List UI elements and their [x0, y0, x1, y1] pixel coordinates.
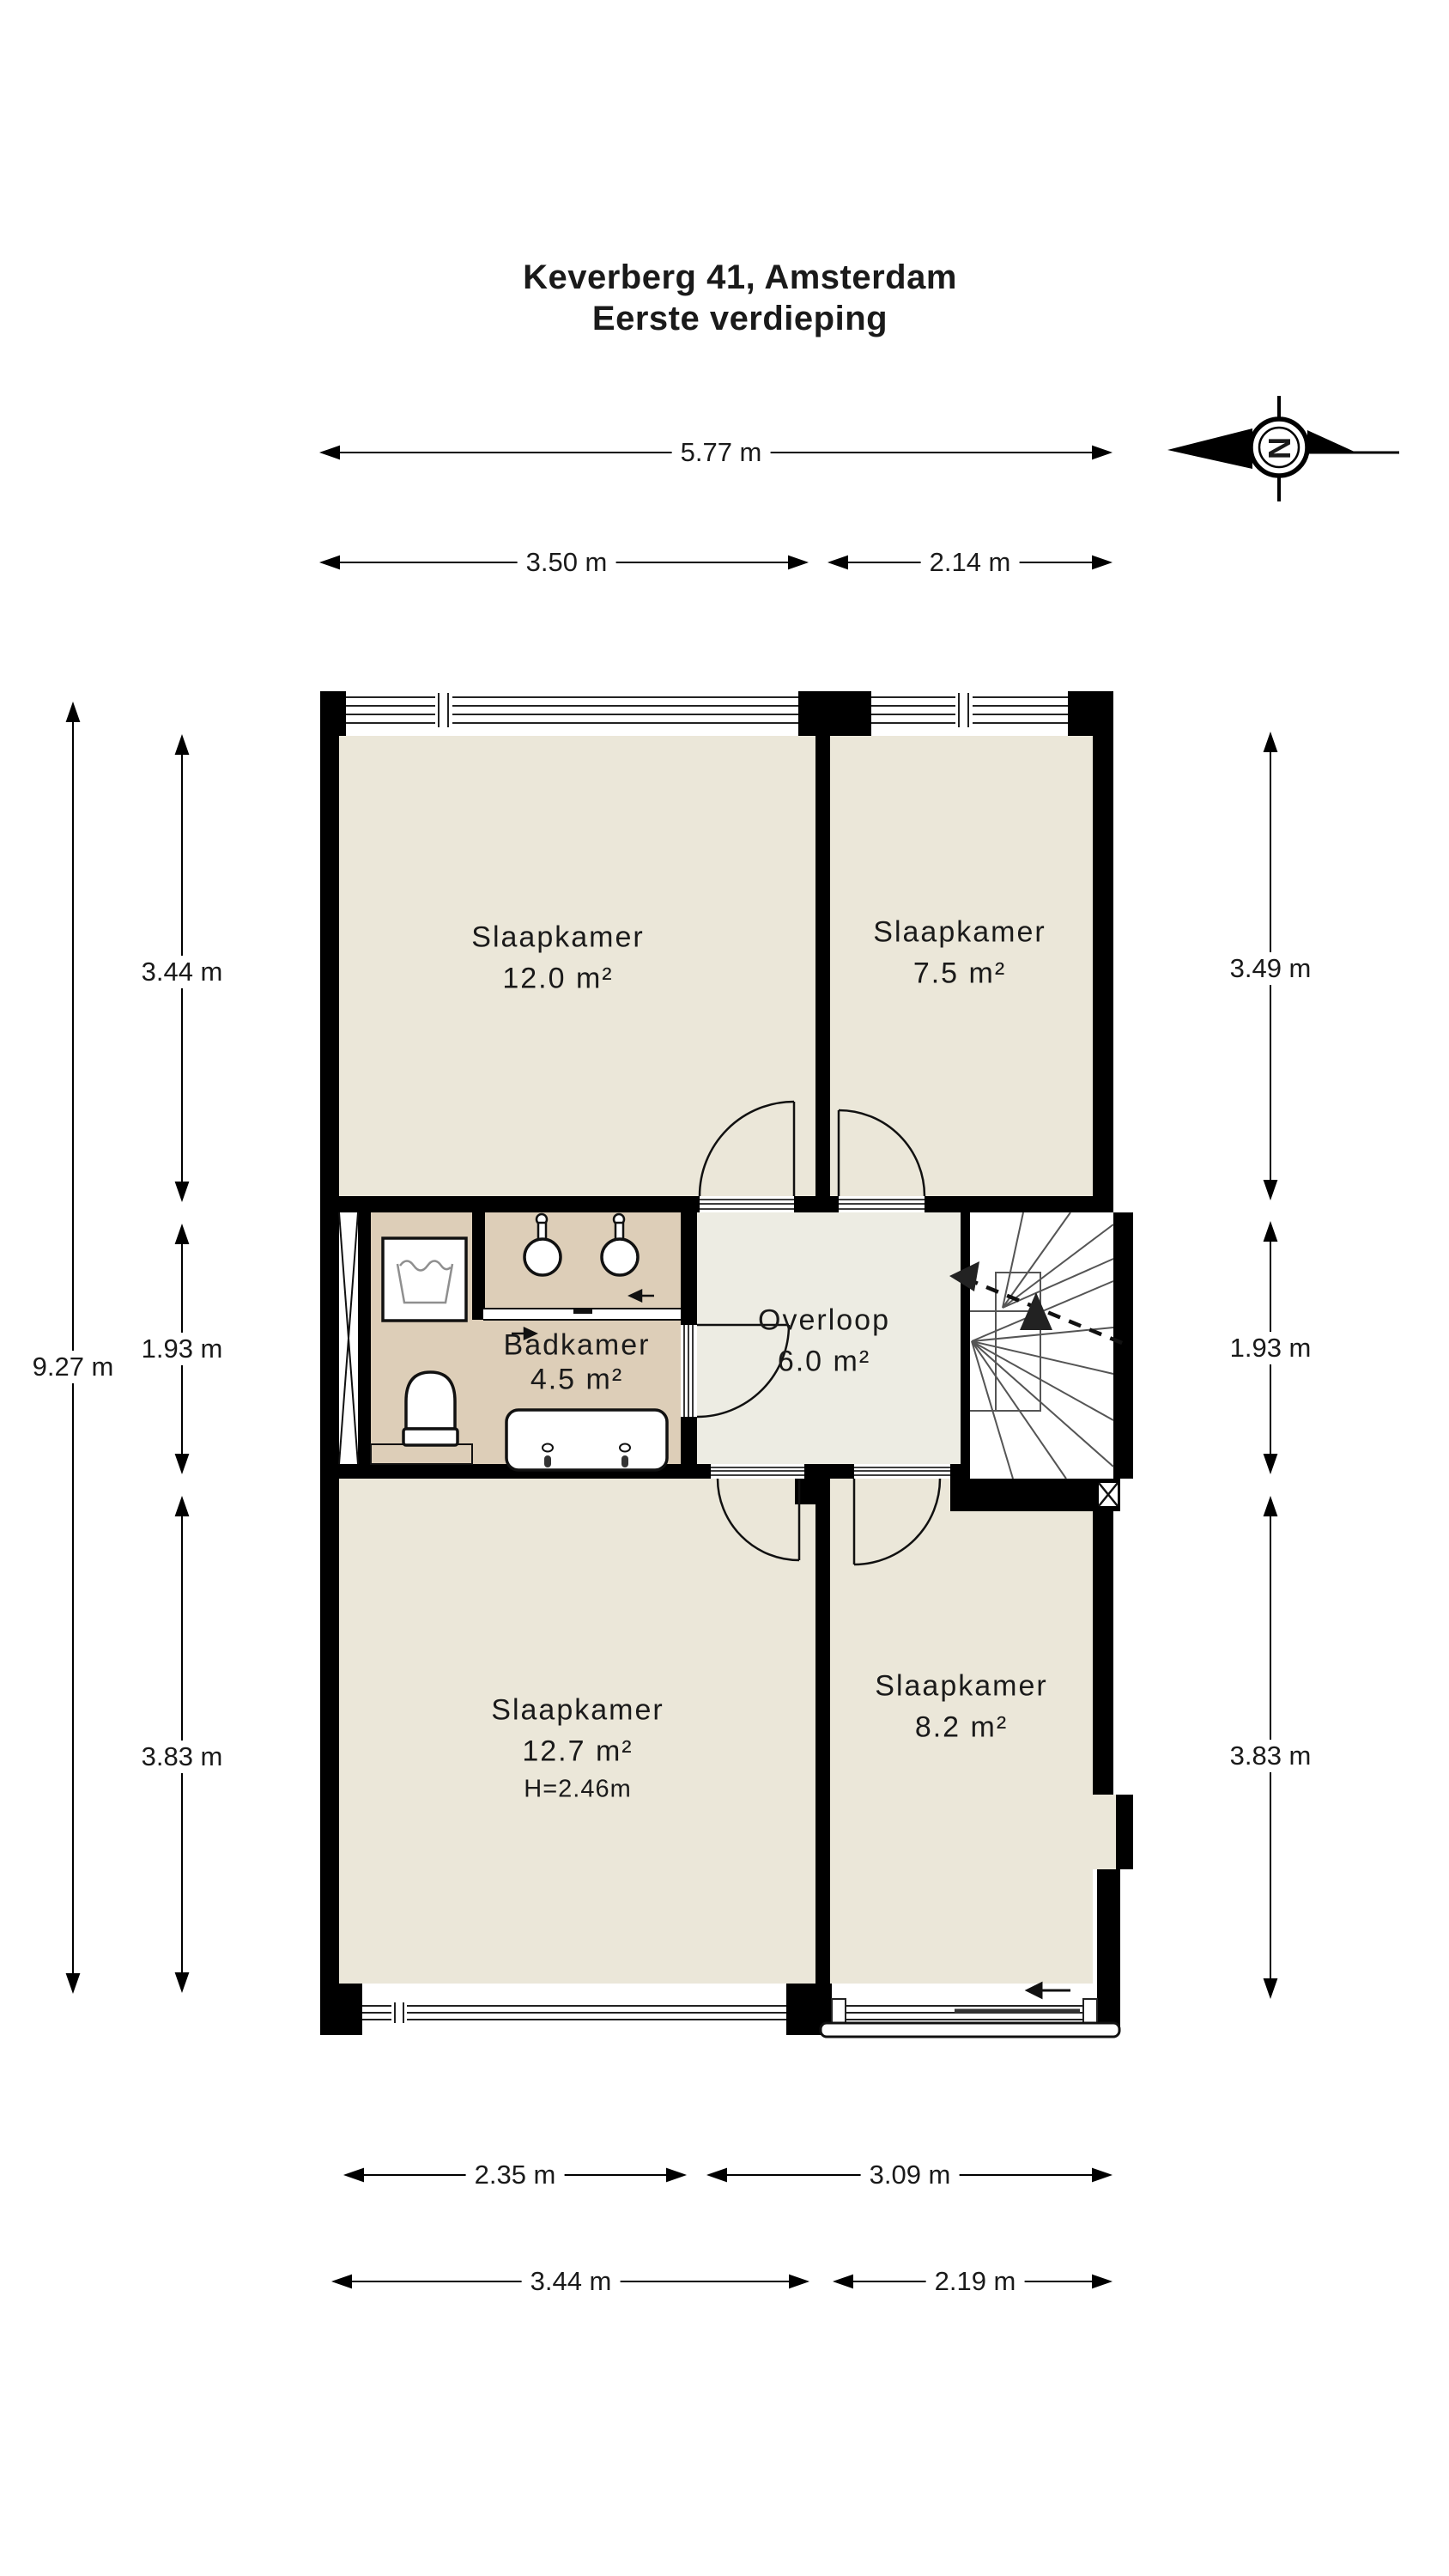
title-line2: Eerste verdieping [523, 298, 957, 339]
dim-top-total: 5.77 m [672, 436, 771, 469]
room-area-bedroom-bl: 12.7 m² [522, 1735, 633, 1769]
dim-right-bottom: 3.83 m [1222, 1740, 1320, 1772]
room-label-bedroom-bl: Slaapkamer [491, 1694, 664, 1728]
bathtub-icon [506, 1410, 667, 1470]
room-label-bedroom-tl: Slaapkamer [471, 921, 644, 955]
compass-letter: N [1261, 437, 1297, 459]
dim-left-total: 9.27 m [24, 1351, 123, 1383]
dim-right-top: 3.49 m [1222, 952, 1320, 985]
shower-screen [483, 1309, 681, 1320]
room-label-bedroom-tr: Slaapkamer [873, 916, 1046, 950]
dim-left-top: 3.44 m [133, 956, 232, 988]
floorplan-drawing [0, 0, 1449, 2576]
room-area-bathroom: 4.5 m² [530, 1364, 623, 1397]
chimney-duct [1099, 1483, 1118, 1506]
dim-top-left: 3.50 m [518, 546, 616, 579]
dim-left-bottom: 3.83 m [133, 1741, 232, 1773]
dim-right-middle: 1.93 m [1222, 1332, 1320, 1364]
dim-bottom-outer-left: 3.44 m [522, 2265, 621, 2298]
dim-bottom-outer-right: 2.19 m [926, 2265, 1025, 2298]
room-area-bedroom-br: 8.2 m² [915, 1711, 1008, 1745]
room-area-bedroom-tr: 7.5 m² [913, 957, 1006, 991]
room-label-bathroom: Badkamer [504, 1329, 651, 1363]
dim-left-middle: 1.93 m [133, 1333, 232, 1365]
washing-machine-icon [383, 1238, 466, 1321]
room-label-landing: Overloop [758, 1304, 890, 1338]
room-area-landing: 6.0 m² [778, 1346, 870, 1379]
room-area-bedroom-tl: 12.0 m² [502, 963, 613, 996]
room-height-bedroom-bl: H=2.46m [524, 1776, 631, 1804]
dim-bottom-inner-right: 3.09 m [861, 2159, 960, 2191]
room-label-bedroom-br: Slaapkamer [875, 1670, 1047, 1704]
page-title: Keverberg 41, Amsterdam Eerste verdiepin… [523, 257, 957, 339]
title-line1: Keverberg 41, Amsterdam [523, 257, 957, 298]
duct-shaft [339, 1212, 358, 1464]
floorplan-page: Keverberg 41, Amsterdam Eerste verdiepin… [0, 0, 1449, 2576]
dim-top-right: 2.14 m [921, 546, 1020, 579]
dim-bottom-inner-left: 2.35 m [466, 2159, 565, 2191]
